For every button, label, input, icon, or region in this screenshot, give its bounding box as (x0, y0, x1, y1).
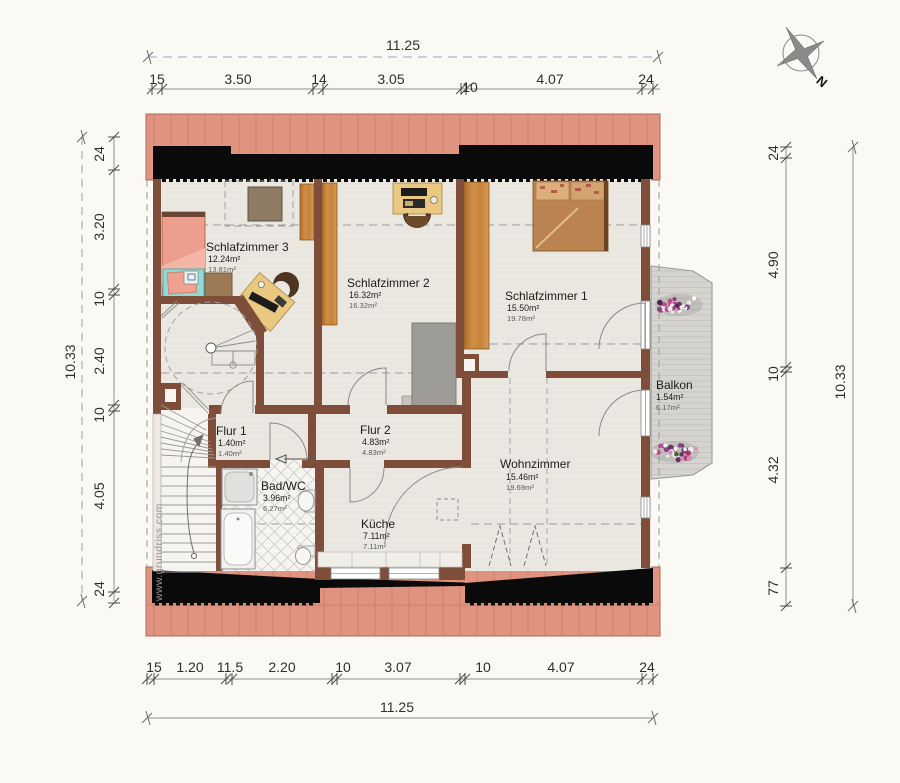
svg-text:Schlafzimmer 2: Schlafzimmer 2 (347, 276, 430, 290)
svg-text:4.83m²: 4.83m² (362, 437, 389, 447)
svg-text:10: 10 (765, 366, 781, 382)
svg-text:4.32: 4.32 (765, 456, 781, 483)
svg-text:1.20: 1.20 (176, 659, 203, 675)
svg-text:1.40m²: 1.40m² (218, 438, 245, 448)
svg-text:3.96m²: 3.96m² (263, 493, 290, 503)
svg-text:1.40m²: 1.40m² (218, 449, 242, 458)
svg-text:10: 10 (462, 79, 478, 95)
svg-text:10: 10 (91, 291, 107, 307)
svg-text:Flur 1: Flur 1 (216, 424, 247, 438)
svg-text:4.83m²: 4.83m² (362, 448, 386, 457)
svg-text:24: 24 (638, 71, 654, 87)
svg-text:12.24m²: 12.24m² (208, 254, 240, 264)
svg-text:www.grundriss.com: www.grundriss.com (153, 503, 165, 602)
svg-text:15: 15 (146, 659, 162, 675)
svg-text:10: 10 (475, 659, 491, 675)
svg-text:10.33: 10.33 (62, 344, 78, 379)
svg-text:13.81m²: 13.81m² (208, 265, 236, 274)
svg-text:4.07: 4.07 (536, 71, 563, 87)
svg-text:24: 24 (765, 145, 781, 161)
svg-text:14: 14 (311, 71, 327, 87)
svg-text:15.46m²: 15.46m² (506, 472, 538, 482)
svg-text:3.05: 3.05 (377, 71, 404, 87)
svg-text:3.50: 3.50 (224, 71, 251, 87)
svg-text:3.20: 3.20 (91, 213, 107, 240)
svg-text:4.90: 4.90 (765, 251, 781, 278)
svg-text:15: 15 (149, 71, 165, 87)
svg-text:4.05: 4.05 (91, 482, 107, 509)
svg-text:10: 10 (335, 659, 351, 675)
svg-text:1.54m²: 1.54m² (656, 392, 683, 402)
svg-text:6.17m²: 6.17m² (656, 403, 680, 412)
svg-text:11.25: 11.25 (386, 37, 420, 53)
svg-text:16.32m²: 16.32m² (349, 301, 377, 310)
svg-text:Küche: Küche (361, 517, 395, 531)
svg-text:Schlafzimmer 3: Schlafzimmer 3 (206, 240, 289, 254)
svg-text:11.25: 11.25 (380, 699, 414, 715)
svg-text:Balkon: Balkon (656, 378, 693, 392)
svg-text:24: 24 (91, 146, 107, 162)
svg-text:Wohnzimmer: Wohnzimmer (500, 457, 570, 471)
svg-text:19.78m²: 19.78m² (507, 314, 535, 323)
svg-text:24: 24 (639, 659, 655, 675)
svg-text:2.40: 2.40 (91, 347, 107, 374)
svg-text:11.5: 11.5 (217, 659, 243, 675)
svg-text:7.11m²: 7.11m² (363, 531, 390, 541)
svg-text:10.33: 10.33 (832, 364, 848, 399)
svg-text:Flur 2: Flur 2 (360, 423, 391, 437)
svg-text:24: 24 (91, 581, 107, 597)
svg-text:4.07: 4.07 (547, 659, 574, 675)
svg-text:15.50m²: 15.50m² (507, 303, 539, 313)
svg-text:16.32m²: 16.32m² (349, 290, 381, 300)
svg-text:Schlafzimmer 1: Schlafzimmer 1 (505, 289, 588, 303)
svg-text:7.11m²: 7.11m² (363, 542, 387, 551)
svg-text:19.69m²: 19.69m² (506, 483, 534, 492)
svg-text:6.27m²: 6.27m² (263, 504, 287, 513)
svg-text:3.07: 3.07 (384, 659, 411, 675)
svg-text:Bad/WC: Bad/WC (261, 479, 306, 493)
svg-text:2.20: 2.20 (268, 659, 295, 675)
svg-text:77: 77 (765, 580, 781, 596)
svg-text:10: 10 (91, 407, 107, 423)
